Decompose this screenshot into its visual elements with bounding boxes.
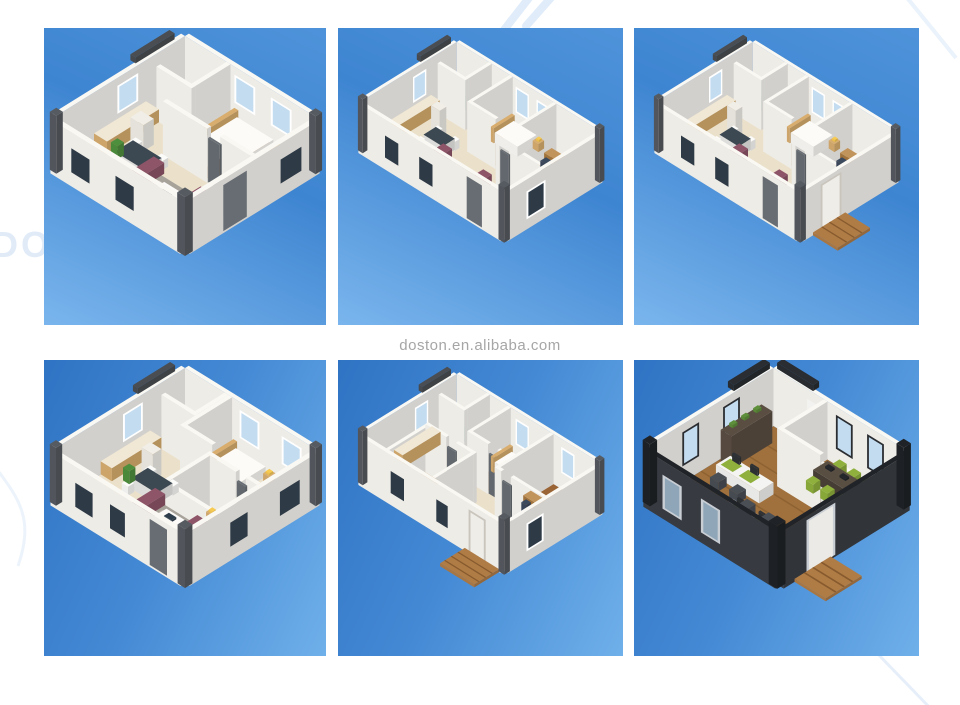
swoosh-v-top-center-2 [526,0,556,26]
swoosh-left-middle [0,468,25,566]
floorplan-3d-render [44,360,326,656]
floorplan-tile-6 [634,360,919,656]
floorplan-3d-render [634,28,919,325]
floorplan-tile-2 [338,28,623,325]
watermark-url-text: doston.en.alibaba.com [0,337,960,354]
swoosh-bottom-right [874,650,934,705]
floorplan-tile-1 [44,28,326,325]
floorplan-3d-render [338,28,623,325]
floorplan-tile-3 [634,28,919,325]
floorplan-3d-render [634,360,919,656]
floorplan-tile-5 [338,360,623,656]
floorplan-3d-render [44,28,326,325]
swoosh-v-top-center [504,0,532,30]
product-image: DOSTON doston.en.alibaba.com [0,0,960,705]
floorplan-tile-4 [44,360,326,656]
floorplan-3d-render [338,360,623,656]
